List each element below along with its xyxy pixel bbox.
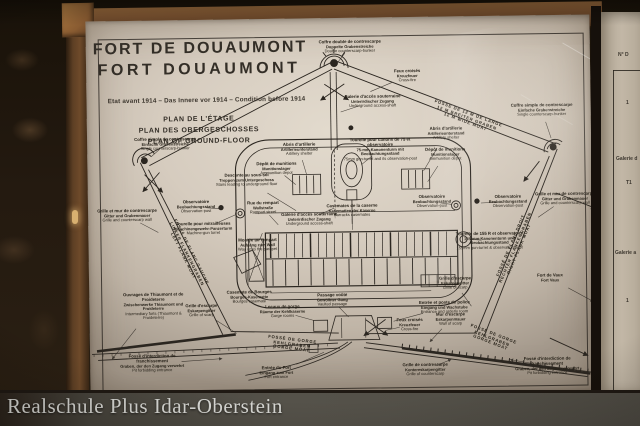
light-glare [416, 43, 595, 227]
plan-label-line-de: Fort Vaux [537, 278, 563, 283]
adjacent-panel-partial: N° D1Galerie dT1Galerie a1 [600, 12, 640, 392]
adjacent-panel-rule [613, 70, 614, 392]
frame-hinge-highlight [72, 210, 78, 224]
plan-label-line-en: Vaulted passage [317, 302, 348, 307]
plan-label-line-en: Grille of counterscarp [403, 372, 448, 377]
plan-label: FOSSÉ DE GORGEKEHLGRABENGORGE MOAT [267, 335, 318, 355]
adjacent-panel-fragment: Galerie a [615, 250, 636, 256]
information-board: FORT DE DOUAUMONT FORT DOUAUMONT Etat av… [85, 14, 594, 397]
photo-of-fort-plan-board: FORT DE DOUAUMONT FORT DOUAUMONT Etat av… [0, 0, 640, 426]
adjacent-panel-fragment: 1 [626, 100, 629, 106]
adjacent-panel-fragment: 1 [626, 298, 629, 304]
plan-label-line-en: Cross-fire [397, 327, 423, 332]
plan-label-line-en: Single counterscarp-bunker [134, 146, 196, 151]
plan-label-line-en: Grille of scarp [439, 286, 471, 291]
panel-gap [591, 6, 601, 394]
plan-label: Fort de VauxFort Vaux [537, 273, 563, 283]
plan-label: Fossé d'interdiction de franchissementGr… [114, 354, 190, 374]
photo-caption: Realschule Plus Idar-Oberstein [7, 394, 283, 419]
adjacent-panel-fragment: N° D [618, 52, 629, 58]
plan-label: Grille de contrescarpeKontereskarpengitt… [403, 363, 449, 377]
adjacent-panel-fragment: T1 [626, 180, 632, 186]
plan-label-line-en: Intermediary forts (Thiaumont & Froidete… [115, 311, 191, 321]
adjacent-panel-fragment: Galerie d [616, 156, 637, 162]
plan-label: Ouvrages de Thiaumont et de FroideterreZ… [115, 292, 191, 321]
plan-label: Feux croisésKreuzfeuerCross-fire [396, 318, 422, 332]
plan-label: Grille et mur de contrescarpeGitter und … [97, 209, 157, 224]
plan-label: ObservatoireBeobachtungsstandObservation… [177, 200, 216, 214]
adjacent-panel-rule [613, 70, 640, 71]
plan-label-line-en: Observation-post [177, 209, 216, 214]
plan-label: Fossé d'interdiction de franchissementGr… [509, 356, 585, 376]
plan-label-line-en: Grille and counterscarp wall [97, 218, 157, 223]
plan-label: Coffre simple de contrescarpeEinfache Gr… [134, 137, 196, 152]
plan-label-line-en: Wall of scarp [436, 322, 466, 327]
plan-label: FOSSÉ DE GORGEKEHLGRABENGORGE MOAT [466, 323, 517, 354]
plan-label-line-en: Gorge rooms [260, 314, 306, 319]
plan-label: Entrée du FortEingang zum FortFort entra… [259, 366, 293, 380]
plan-label: Mur d'escarpeEskarpenmauerWall of scarp [435, 312, 465, 326]
plan-label-line-en: Fort entrance [259, 375, 293, 380]
